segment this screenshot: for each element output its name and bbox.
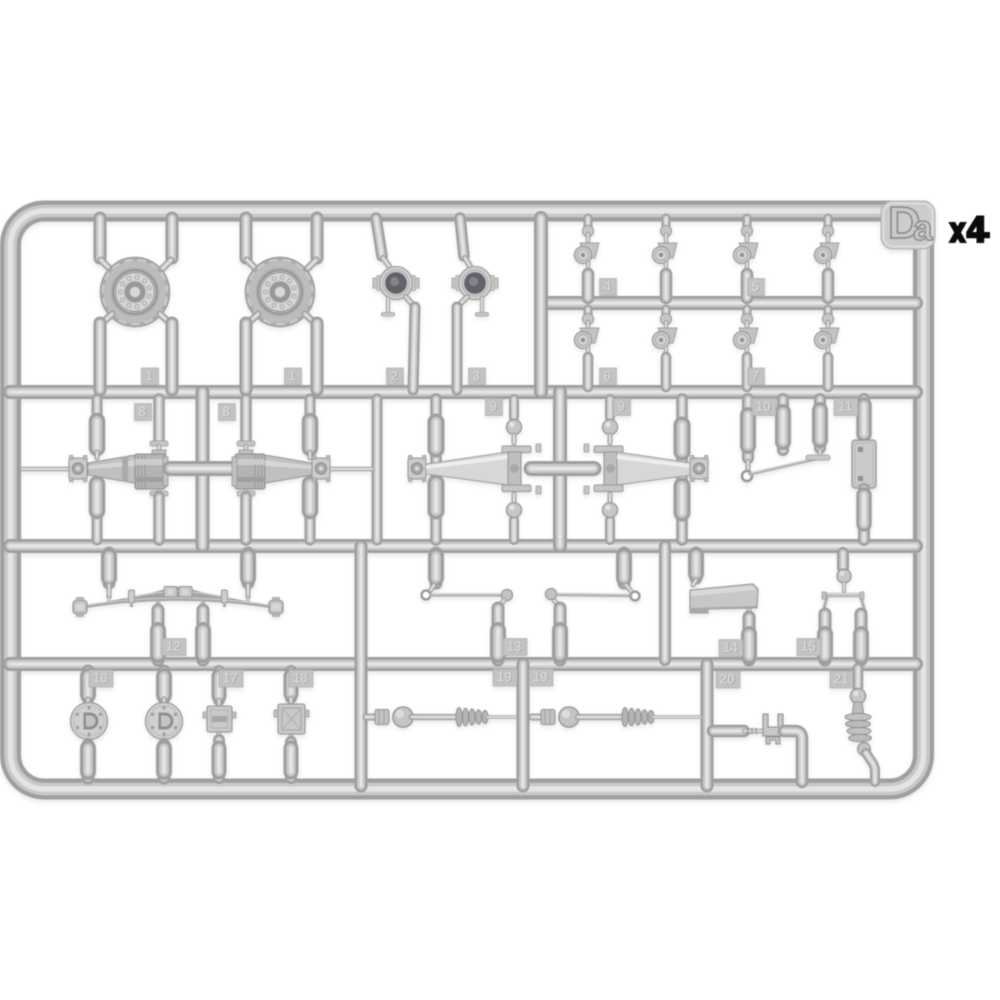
svg-text:21: 21 <box>834 671 850 686</box>
svg-text:8: 8 <box>139 404 147 419</box>
svg-text:18: 18 <box>293 670 309 685</box>
svg-text:19: 19 <box>497 669 512 684</box>
svg-text:13: 13 <box>507 639 523 654</box>
svg-text:6: 6 <box>604 368 612 383</box>
svg-text:1: 1 <box>289 368 297 383</box>
svg-text:4: 4 <box>604 279 612 294</box>
svg-text:16: 16 <box>93 670 109 685</box>
svg-text:17: 17 <box>223 670 238 685</box>
svg-text:15: 15 <box>801 639 817 654</box>
svg-text:19: 19 <box>533 669 548 684</box>
svg-text:20: 20 <box>720 671 735 686</box>
svg-text:8: 8 <box>223 404 231 419</box>
svg-text:5: 5 <box>752 279 760 294</box>
svg-text:2: 2 <box>391 368 399 383</box>
svg-text:14: 14 <box>723 640 739 655</box>
svg-text:10: 10 <box>756 399 771 414</box>
svg-text:9: 9 <box>490 399 498 414</box>
svg-text:7: 7 <box>752 368 760 383</box>
svg-text:3: 3 <box>473 368 481 383</box>
svg-text:12: 12 <box>166 639 181 654</box>
svg-text:a: a <box>913 209 933 248</box>
svg-text:9: 9 <box>618 399 626 414</box>
svg-text:1: 1 <box>146 368 154 383</box>
svg-text:11: 11 <box>838 399 853 414</box>
